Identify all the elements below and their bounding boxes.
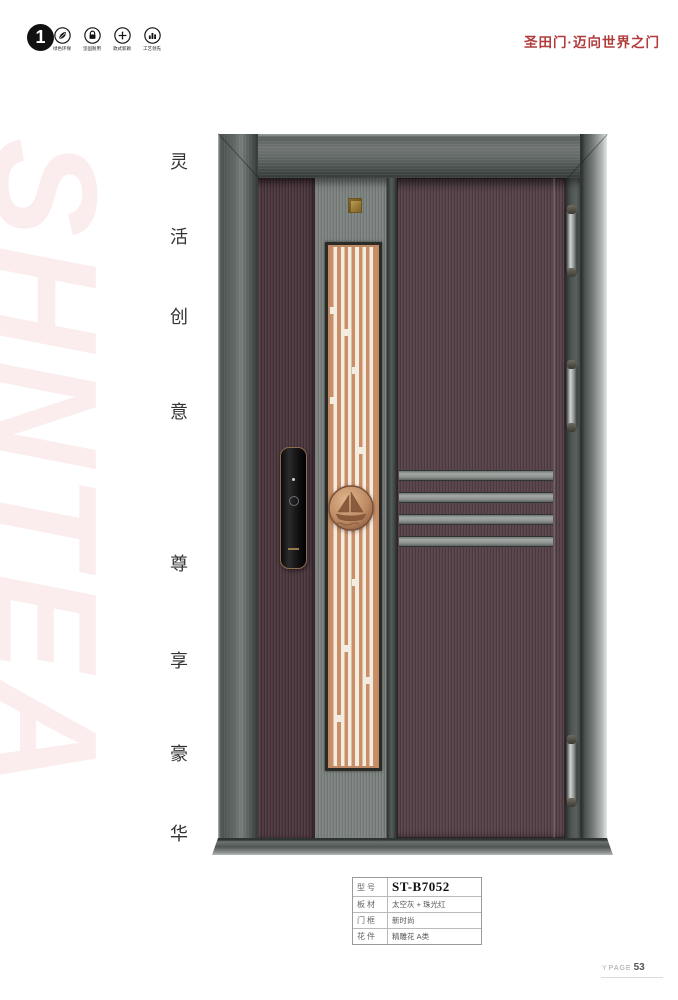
panel-stripe [399,470,553,481]
grille-break [352,579,356,586]
door-panel-divider [387,178,397,838]
spec-row-flower: 花件 精雕花 A类 [353,928,481,944]
feature-label: 坚固耐用 [83,45,101,51]
feature-style: 款式新颖 [112,27,133,52]
spec-row-panel: 板材 太空灰 + 珠光红 [353,896,481,912]
door-frame-right [580,134,607,838]
feature-eco: 绿色环保 [52,27,73,52]
smart-lock [280,447,307,569]
vertical-slogan-char: 享 [169,647,189,673]
lock-indicator-dot [292,478,295,481]
page-label: PAGE [609,965,632,972]
vertical-slogan-char: 华 [169,820,189,846]
vertical-slogan-char: 创 [169,303,189,329]
feature-durable: 坚固耐用 [82,27,103,52]
chart-icon [144,27,161,44]
footer-divider [601,977,663,978]
page-section-badge: 1 [27,24,54,51]
door-frame-left [218,134,258,838]
spec-label: 型号 [353,878,388,896]
vertical-slogan-char: 尊 [169,550,189,576]
brand-slogan: 圣田门·迈向世界之门 [524,31,660,51]
grille-break [359,447,363,454]
feature-label: 工艺领先 [143,45,161,51]
lock-keyhole [289,496,299,506]
grille-break [366,677,370,684]
plus-icon [114,27,131,44]
door-hinge [566,208,577,274]
spec-value: 新时尚 [388,913,481,928]
leaf-icon [54,27,71,44]
vertical-slogan-char: 豪 [169,740,189,766]
vertical-slogan-char: 活 [169,223,189,249]
grille-break [352,367,356,374]
spec-table: 型号 ST-B7052 板材 太空灰 + 珠光红 门框 新时尚 花件 精雕花 A… [352,877,482,945]
vertical-slogan-char: 意 [169,398,189,424]
panel-stripe [399,492,553,503]
feature-label: 绿色环保 [53,45,71,51]
door-hinge [566,738,577,804]
panel-stripe [399,514,553,525]
page-number: 53 [634,962,645,973]
door-frame-top [218,134,607,178]
catalog-page: { "header": { "badge_number": "1", "feat… [0,0,678,1000]
feature-icon-row: 绿色环保 坚固耐用 款式新颖 工艺领先 [52,27,163,52]
door-threshold [212,838,613,855]
grille-break [337,715,341,722]
lock-brand-tag [288,548,299,550]
grille-break [344,329,348,336]
model-number: ST-B7052 [388,878,481,896]
door-brand-plate [348,198,362,213]
panel-stripe [399,536,553,547]
door-product-photo [218,134,607,855]
feature-label: 款式新颖 [113,45,131,51]
spec-value: 精雕花 A类 [388,929,481,944]
spec-value: 太空灰 + 珠光红 [388,897,481,912]
ship-medallion [328,485,374,531]
grille-break [330,397,334,404]
grille-break [330,307,334,314]
spec-label: 门框 [353,913,388,928]
page-footer: Y PAGE 53 [602,962,664,973]
spec-row-model: 型号 ST-B7052 [353,878,481,896]
brand-watermark: SHNTEA [0,138,118,794]
lock-icon [84,27,101,44]
grille-break [344,645,348,652]
door-main-panel [397,178,565,838]
panel-edge-highlight [553,178,555,838]
feature-craft: 工艺领先 [142,27,163,52]
spec-row-frame: 门框 新时尚 [353,912,481,928]
spec-label: 板材 [353,897,388,912]
footer-logo-mark: Y [602,965,607,972]
door-hinge [566,363,577,429]
vertical-slogan-char: 灵 [169,148,189,174]
spec-label: 花件 [353,929,388,944]
